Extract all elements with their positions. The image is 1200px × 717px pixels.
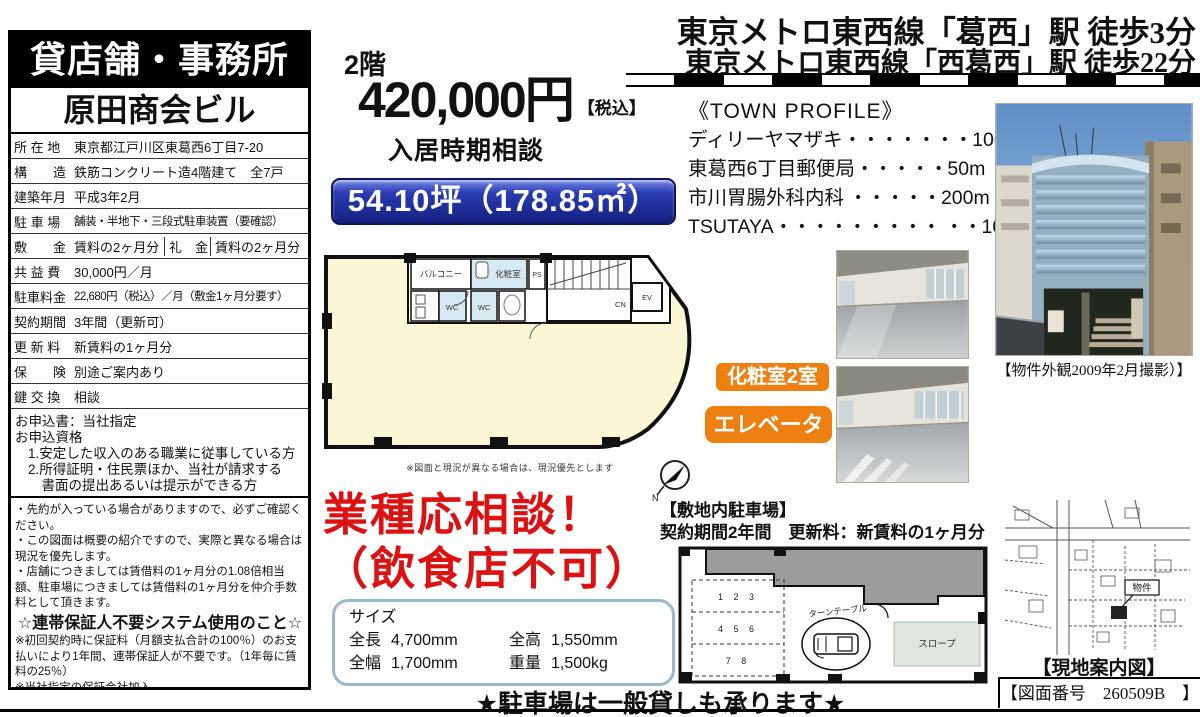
slope-label: スロープ <box>918 639 956 650</box>
note-line: ・この図面は概要の紹介ですので、実際と異なる場合は現況を優先します。 <box>15 534 305 565</box>
table-row: 契約期間 3年間（更新可） <box>11 309 308 334</box>
move-in-note: 入居時期相談 <box>388 131 544 167</box>
table-row: 共 益 費 30,000円／月 <box>11 259 308 284</box>
drawing-number: 【図面番号 260509B 】 <box>998 677 1200 708</box>
parking-diagram: 1 2 3 4 5 6 7 8 ターンテーブル スロープ <box>678 546 988 684</box>
floor-area-banner: 54.10坪（178.85㎡） <box>331 178 676 225</box>
town-profile-title: 《TOWN PROFILE》 <box>688 98 1000 126</box>
cn-label: CN <box>615 300 626 309</box>
business-type-line1: 業種応相談！ <box>323 488 683 542</box>
disclaimer-notes: ・先約が入っている場合がありますので、必ずご確認ください。 ・この図面は概要の紹… <box>11 496 308 690</box>
rent-amount: 420,000円 <box>358 72 573 128</box>
business-type-note: 業種応相談！ （飲食店不可） <box>323 488 683 596</box>
parking-general-note: ★駐車場は一般貸しも承ります★ <box>438 684 883 717</box>
application-line: 書面の提出あるいは提示ができる方 <box>15 478 306 494</box>
table-row: 建築年月 平成3年2月 <box>11 184 308 209</box>
application-line: 2.所得証明・住民票ほか、当社が請求する <box>15 462 306 478</box>
table-row: 構 造 鉄筋コンクリート造4階建て 全7戸 <box>11 159 308 184</box>
note-line: ・店舗につきましては賃借料の1ヶ月分の1.08倍相当額、駐車場につきましては賃借… <box>15 565 305 612</box>
building-exterior-photo <box>995 103 1193 356</box>
town-profile: 《TOWN PROFILE》 ディリーヤマザキ・・・・・・・100m 東葛西6丁… <box>688 98 1000 242</box>
application-line: 1.安定した収入のある職業に従事している方 <box>15 446 306 462</box>
flyer-page: 貸店舗・事務所 原田商会ビル 所 在 地 東京都江戸川区東葛西6丁目7-20 構… <box>0 0 1200 717</box>
town-profile-item: ディリーヤマザキ・・・・・・・100m <box>688 126 1000 155</box>
ps-label: PS <box>532 272 542 279</box>
table-row: 鍵 交 換 相談 <box>11 384 308 409</box>
location-map-art: 物件 <box>1005 500 1190 655</box>
application-requirements: お申込書：当社指定 お申込資格 1.安定した収入のある職業に従事している方 2.… <box>11 409 308 496</box>
table-row: 駐車料金 22,680円（税込）／月（敷金1ヶ月分要す） <box>11 284 308 309</box>
size-box-title: サイズ <box>349 607 658 629</box>
floorplan-disclaimer: ※図面と現況が異なる場合は、現況優先とします <box>350 461 670 474</box>
town-profile-item: TSUTAYA・・・・・・・・・ ・・100m <box>688 213 1000 242</box>
table-row: 所 在 地 東京都江戸川区東葛西6丁目7-20 <box>11 134 308 159</box>
elevator-badge: エレベーター <box>703 404 834 445</box>
interior-photo-1-art <box>837 251 968 358</box>
powder-room-label: 化粧室 <box>495 269 521 279</box>
table-row: 保 険 別途ご案内あり <box>11 359 308 384</box>
building-name: 原田商会ビル <box>11 88 308 134</box>
elevator-plan-label: EV <box>642 293 652 302</box>
spec-table: 所 在 地 東京都江戸川区東葛西6丁目7-20 構 造 鉄筋コンクリート造4階建… <box>11 134 308 409</box>
town-profile-item: 市川胃腸外科内科 ・・・・・200m <box>688 184 1000 213</box>
rent-price: 420,000円 【税込】 <box>358 72 646 128</box>
car-size-limit-box: サイズ 全長 4,700mm 全高 1,550mm 全幅 1,700mm 重量 … <box>332 599 675 686</box>
parking-row-1: 1 2 3 <box>718 592 758 602</box>
floorplan-drawing: バルコニー WC 化粧室 WC PS CN EV <box>318 239 693 471</box>
location-map: 物件 <box>1005 500 1190 655</box>
table-row-deposit-key-money: 敷 金 賃料の2ヶ月分 礼 金 賃料の2ヶ月分 <box>11 234 308 259</box>
balcony-label: バルコニー <box>420 269 462 279</box>
table-row: 駐 車 場 舗装・半地下・三段式駐車装置（要確認） <box>11 209 308 234</box>
town-profile-item: 東葛西6丁目郵便局・・・・・50m <box>688 155 1000 184</box>
wc2-label: WC <box>478 303 491 312</box>
floorplan: バルコニー WC 化粧室 WC PS CN EV <box>318 239 693 471</box>
map-caption: 【現地案内図】 <box>1008 653 1190 680</box>
parking-row-3: 7 8 <box>726 656 751 666</box>
metro-line-stripe <box>626 73 1200 87</box>
application-line: お申込書：当社指定 <box>15 414 306 430</box>
tax-included-note: 【税込】 <box>578 94 646 128</box>
map-property-label: 物件 <box>1132 582 1152 594</box>
guarantor-system-title: ☆連帯保証人不要システム使用のこと☆ <box>15 616 305 632</box>
application-line: お申込資格 <box>15 430 306 446</box>
note-line: ・先約が入っている場合がありますので、必ずご確認ください。 <box>15 503 305 534</box>
business-type-line2: （飲食店不可） <box>323 542 683 596</box>
exterior-photo-caption: 【物件外観2009年2月撮影）】 <box>988 359 1200 380</box>
interior-photo-2-art <box>837 367 968 482</box>
parking-row-2: 4 5 6 <box>718 624 758 634</box>
parking-diagram-art: 1 2 3 4 5 6 7 8 ターンテーブル スロープ <box>678 546 988 684</box>
listing-type-header: 貸店舗・事務所 <box>11 33 308 88</box>
interior-photo-1 <box>836 250 969 359</box>
guarantor-note: ※初回契約時に保証料（月額支払合計の100％）のお支払いにより1年間、連帯保証人… <box>15 634 305 681</box>
exterior-photo-art <box>996 104 1192 355</box>
bottom-rule <box>0 709 1200 712</box>
onsite-parking-terms: 契約期間2年間 更新料：新賃料の1ヶ月分 <box>660 518 985 543</box>
table-row: 更 新 料 新賃料の1ヶ月分 <box>11 334 308 359</box>
size-row: 全長 4,700mm 全高 1,550mm <box>349 629 658 652</box>
size-row: 全幅 1,700mm 重量 1,500kg <box>349 652 658 675</box>
powder-room-badge: 化粧室2室 <box>714 361 831 393</box>
property-summary-panel: 貸店舗・事務所 原田商会ビル 所 在 地 東京都江戸川区東葛西6丁目7-20 構… <box>8 30 311 690</box>
interior-photo-2 <box>836 366 969 483</box>
guarantor-note: ※当社指定の保証会社加入。 <box>15 681 305 691</box>
